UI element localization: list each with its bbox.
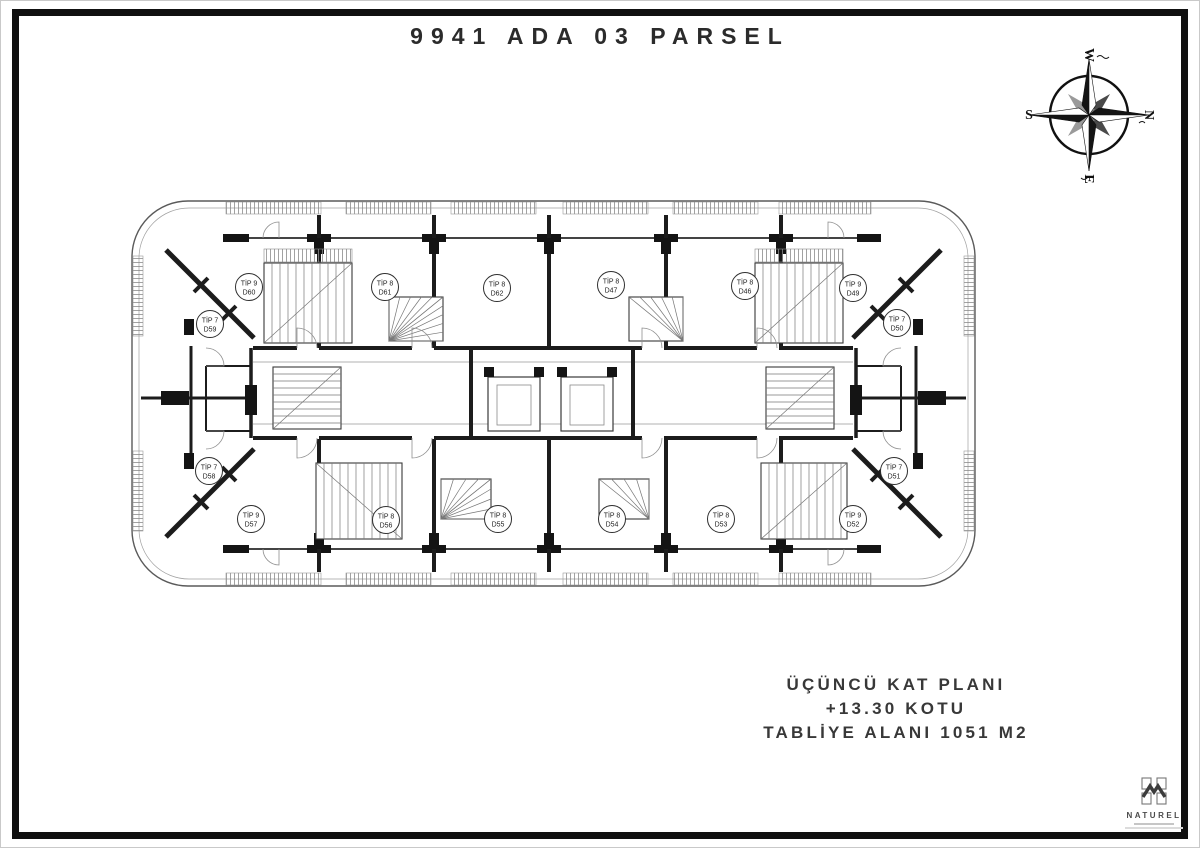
caption-floor: ÜÇÜNCÜ KAT PLANI [729, 673, 1063, 697]
svg-text:D46: D46 [739, 289, 752, 296]
svg-text:TİP 8: TİP 8 [489, 280, 506, 289]
unit-label: TİP 8D55 [485, 506, 512, 533]
unit-label: TİP 9D57 [238, 506, 265, 533]
unit-label: TİP 7D51 [881, 458, 908, 485]
svg-text:D51: D51 [888, 474, 901, 481]
unit-label: TİP 8D54 [599, 506, 626, 533]
logo-subtext-line [1134, 823, 1174, 825]
svg-text:TİP 8: TİP 8 [713, 511, 730, 520]
logo-subtext-line [1125, 827, 1183, 829]
svg-text:TİP 8: TİP 8 [737, 278, 754, 287]
unit-label: TİP 9D52 [840, 506, 867, 533]
svg-text:D62: D62 [491, 291, 504, 298]
svg-text:D47: D47 [605, 288, 618, 295]
unit-label: TİP 8D62 [484, 275, 511, 302]
svg-text:D61: D61 [379, 290, 392, 297]
unit-label: TİP 7D50 [884, 310, 911, 337]
naturel-logo-icon [1141, 777, 1167, 805]
elevator-core [471, 348, 633, 438]
svg-text:TİP 9: TİP 9 [243, 511, 260, 520]
svg-text:D53: D53 [715, 522, 728, 529]
caption-level: +13.30 KOTU [729, 697, 1063, 721]
svg-text:TİP 8: TİP 8 [490, 511, 507, 520]
svg-text:TİP 9: TİP 9 [845, 511, 862, 520]
unit-label: TİP 7D58 [196, 458, 223, 485]
unit-label: TİP 8D61 [372, 274, 399, 301]
svg-text:TİP 7: TİP 7 [201, 463, 218, 472]
compass-rose-icon: W N E S [1021, 47, 1157, 187]
svg-text:TİP 7: TİP 7 [202, 316, 219, 325]
compass-letter-left: S [1025, 108, 1033, 123]
logo-name: NATUREL [1115, 811, 1193, 820]
company-logo: NATUREL [1115, 777, 1193, 829]
unit-label: TİP 8D46 [732, 273, 759, 300]
svg-text:D59: D59 [204, 327, 217, 334]
unit-label: TİP 8D56 [373, 507, 400, 534]
svg-text:TİP 8: TİP 8 [378, 512, 395, 521]
svg-text:TİP 8: TİP 8 [377, 279, 394, 288]
svg-text:D49: D49 [847, 291, 860, 298]
svg-text:D60: D60 [243, 290, 256, 297]
svg-text:D50: D50 [891, 326, 904, 333]
svg-text:D57: D57 [245, 522, 258, 529]
unit-label: TİP 8D47 [598, 272, 625, 299]
unit-label: TİP 7D59 [197, 311, 224, 338]
svg-text:D56: D56 [380, 523, 393, 530]
stairs [264, 249, 847, 539]
caption-area: TABLİYE ALANI 1051 M2 [729, 721, 1063, 745]
svg-text:D58: D58 [203, 474, 216, 481]
corridor-walls [253, 348, 853, 438]
svg-text:TİP 8: TİP 8 [604, 511, 621, 520]
unit-label: TİP 9D60 [236, 274, 263, 301]
svg-text:D55: D55 [492, 522, 505, 529]
compass-letter-top: W [1081, 48, 1096, 62]
svg-text:TİP 7: TİP 7 [886, 463, 903, 472]
svg-text:D54: D54 [606, 522, 619, 529]
drawing-caption: ÜÇÜNCÜ KAT PLANI +13.30 KOTU TABLİYE ALA… [729, 673, 1063, 745]
svg-text:TİP 7: TİP 7 [889, 315, 906, 324]
unit-label: TİP 9D49 [840, 275, 867, 302]
svg-text:TİP 8: TİP 8 [603, 277, 620, 286]
drawing-sheet: 9941 ADA 03 PARSEL [0, 0, 1200, 848]
svg-text:TİP 9: TİP 9 [845, 280, 862, 289]
unit-label: TİP 8D53 [708, 506, 735, 533]
svg-text:D52: D52 [847, 522, 860, 529]
compass-letter-right: N [1141, 110, 1156, 120]
svg-text:TİP 9: TİP 9 [241, 279, 258, 288]
